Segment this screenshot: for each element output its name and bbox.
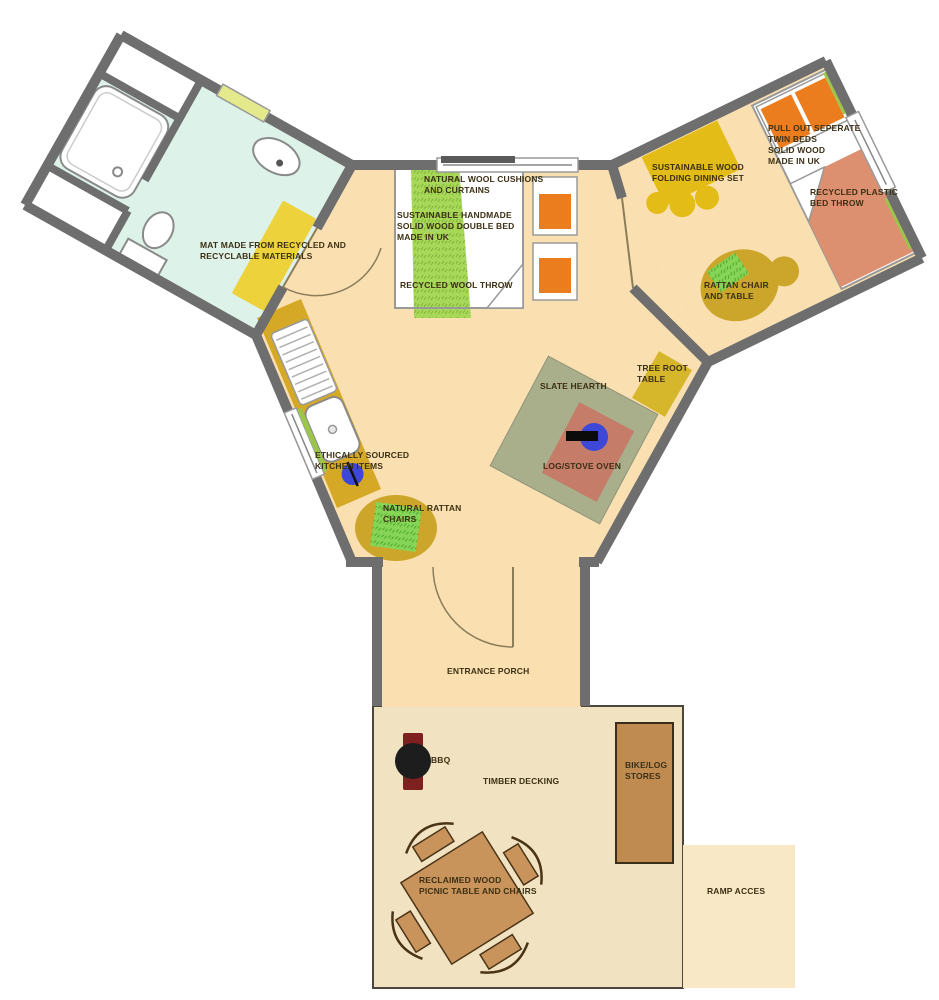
log-stove-label: LOG/STOVE OVEN	[543, 461, 621, 472]
picnic-table-label: RECLAIMED WOOD PICNIC TABLE AND CHAIRS	[419, 875, 537, 897]
bike-log-store	[616, 723, 673, 863]
ramp-access-label: RAMP ACCES	[707, 886, 765, 897]
stove-handle	[566, 431, 598, 441]
double-bed-label: SUSTAINABLE HANDMADE SOLID WOOD DOUBLE B…	[397, 210, 514, 243]
cushions-label: NATURAL WOOL CUSHIONS AND CURTAINS	[424, 174, 543, 196]
bike-log-stores-label: BIKE/LOG STORES	[625, 760, 667, 782]
tree-root-table-label: TREE ROOT TABLE	[637, 363, 688, 385]
twin-beds-label: PULL OUT SEPERATE TWIN BEDS SOLID WOOD M…	[768, 123, 860, 167]
bbq-label: BBQ	[431, 755, 450, 766]
rattan-chairs-label: NATURAL RATTAN CHAIRS	[383, 503, 461, 525]
rattan-chair-table-label: RATTAN CHAIR AND TABLE	[704, 280, 769, 302]
mat-label: MAT MADE FROM RECYCLED AND RECYCLABLE MA…	[200, 240, 346, 262]
entrance-porch-label: ENTRANCE PORCH	[447, 666, 529, 677]
timber-decking-label: TIMBER DECKING	[483, 776, 559, 787]
dining-set-label: SUSTAINABLE WOOD FOLDING DINING SET	[652, 162, 744, 184]
curtain-rail	[441, 156, 515, 163]
plastic-throw-label: RECYCLED PLASTIC BED THROW	[810, 187, 898, 209]
kitchen-items-label: ETHICALLY SOURCED KITCHEN ITEMS	[315, 450, 409, 472]
porch-floor	[382, 557, 581, 707]
slate-hearth-label: SLATE HEARTH	[540, 381, 607, 392]
ramp-area	[683, 845, 795, 988]
floor-plan: MAT MADE FROM RECYCLED AND RECYCLABLE MA…	[0, 0, 939, 1000]
wool-throw-label: RECYCLED WOOL THROW	[400, 280, 513, 291]
